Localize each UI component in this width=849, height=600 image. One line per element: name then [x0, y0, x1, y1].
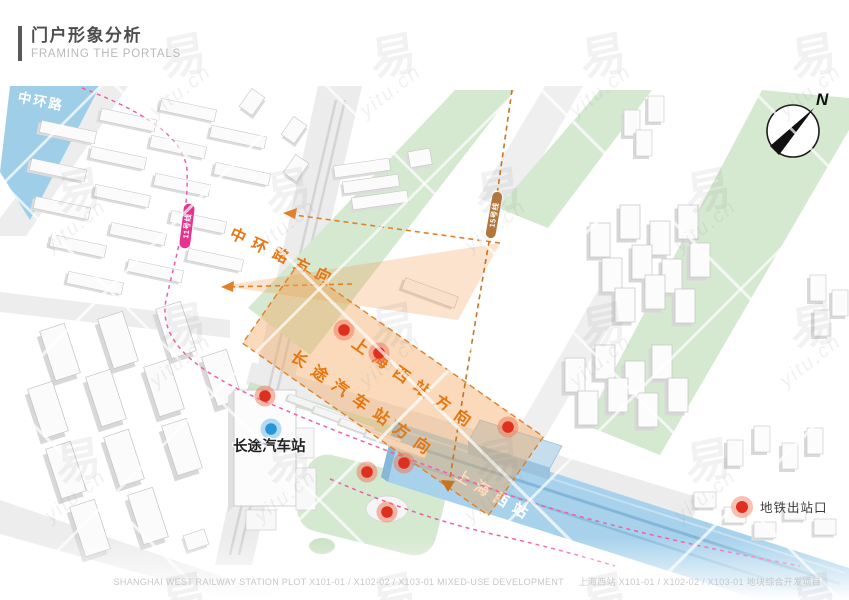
metro-exit-dot: [369, 343, 390, 364]
metro-exit-dot: [498, 417, 519, 438]
footer-caption-zh: 上海西站 X101-01 / X102-02 / X103-01 地块综合开发项…: [579, 577, 821, 587]
metro-exit-dot: [357, 462, 378, 483]
site-map: 中环路 上海西站: [0, 0, 849, 600]
page-title: 门户形象分析: [31, 26, 181, 46]
metro-exit-dot: [394, 453, 415, 474]
metro-exit-dot: [334, 320, 355, 341]
bottom-fade: [0, 538, 849, 600]
metro-exit-dot: [255, 386, 276, 407]
footer-caption: SHANGHAI WEST RAILWAY STATION PLOT X101-…: [0, 575, 821, 588]
page: 中环路 上海西站: [0, 0, 849, 600]
page-subtitle: FRAMING THE PORTALS: [31, 48, 181, 60]
footer-caption-en: SHANGHAI WEST RAILWAY STATION PLOT X101-…: [114, 577, 564, 587]
title-accent-bar: [18, 26, 22, 61]
metro-exit-legend-label: 地铁出站口: [760, 497, 828, 516]
metro-line-15-label: 15号线: [486, 202, 500, 229]
page-header: 门户形象分析 FRAMING THE PORTALS: [18, 26, 181, 61]
metro-exit-dot: [377, 502, 398, 523]
metro-exit-legend-dot: [736, 501, 748, 513]
legend: 地铁出站口: [736, 497, 828, 516]
coach-station-label: 长途汽车站: [233, 437, 306, 455]
north-label: N: [816, 90, 829, 109]
